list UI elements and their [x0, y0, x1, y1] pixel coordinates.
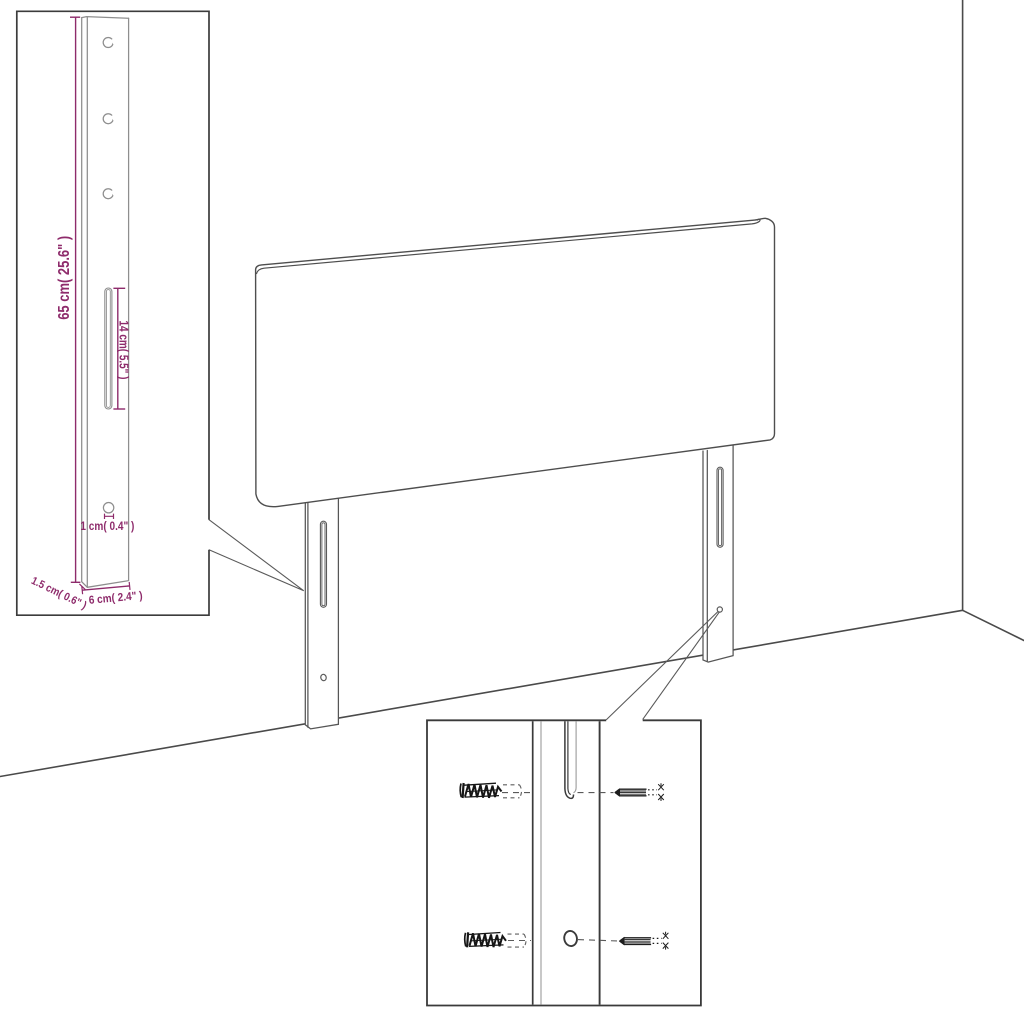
svg-text:14 cm( 5.5" ): 14 cm( 5.5" )	[117, 321, 132, 380]
svg-text:1 cm( 0.4" ): 1 cm( 0.4" )	[80, 519, 134, 533]
svg-text:65 cm( 25.6" ): 65 cm( 25.6" )	[56, 236, 73, 320]
